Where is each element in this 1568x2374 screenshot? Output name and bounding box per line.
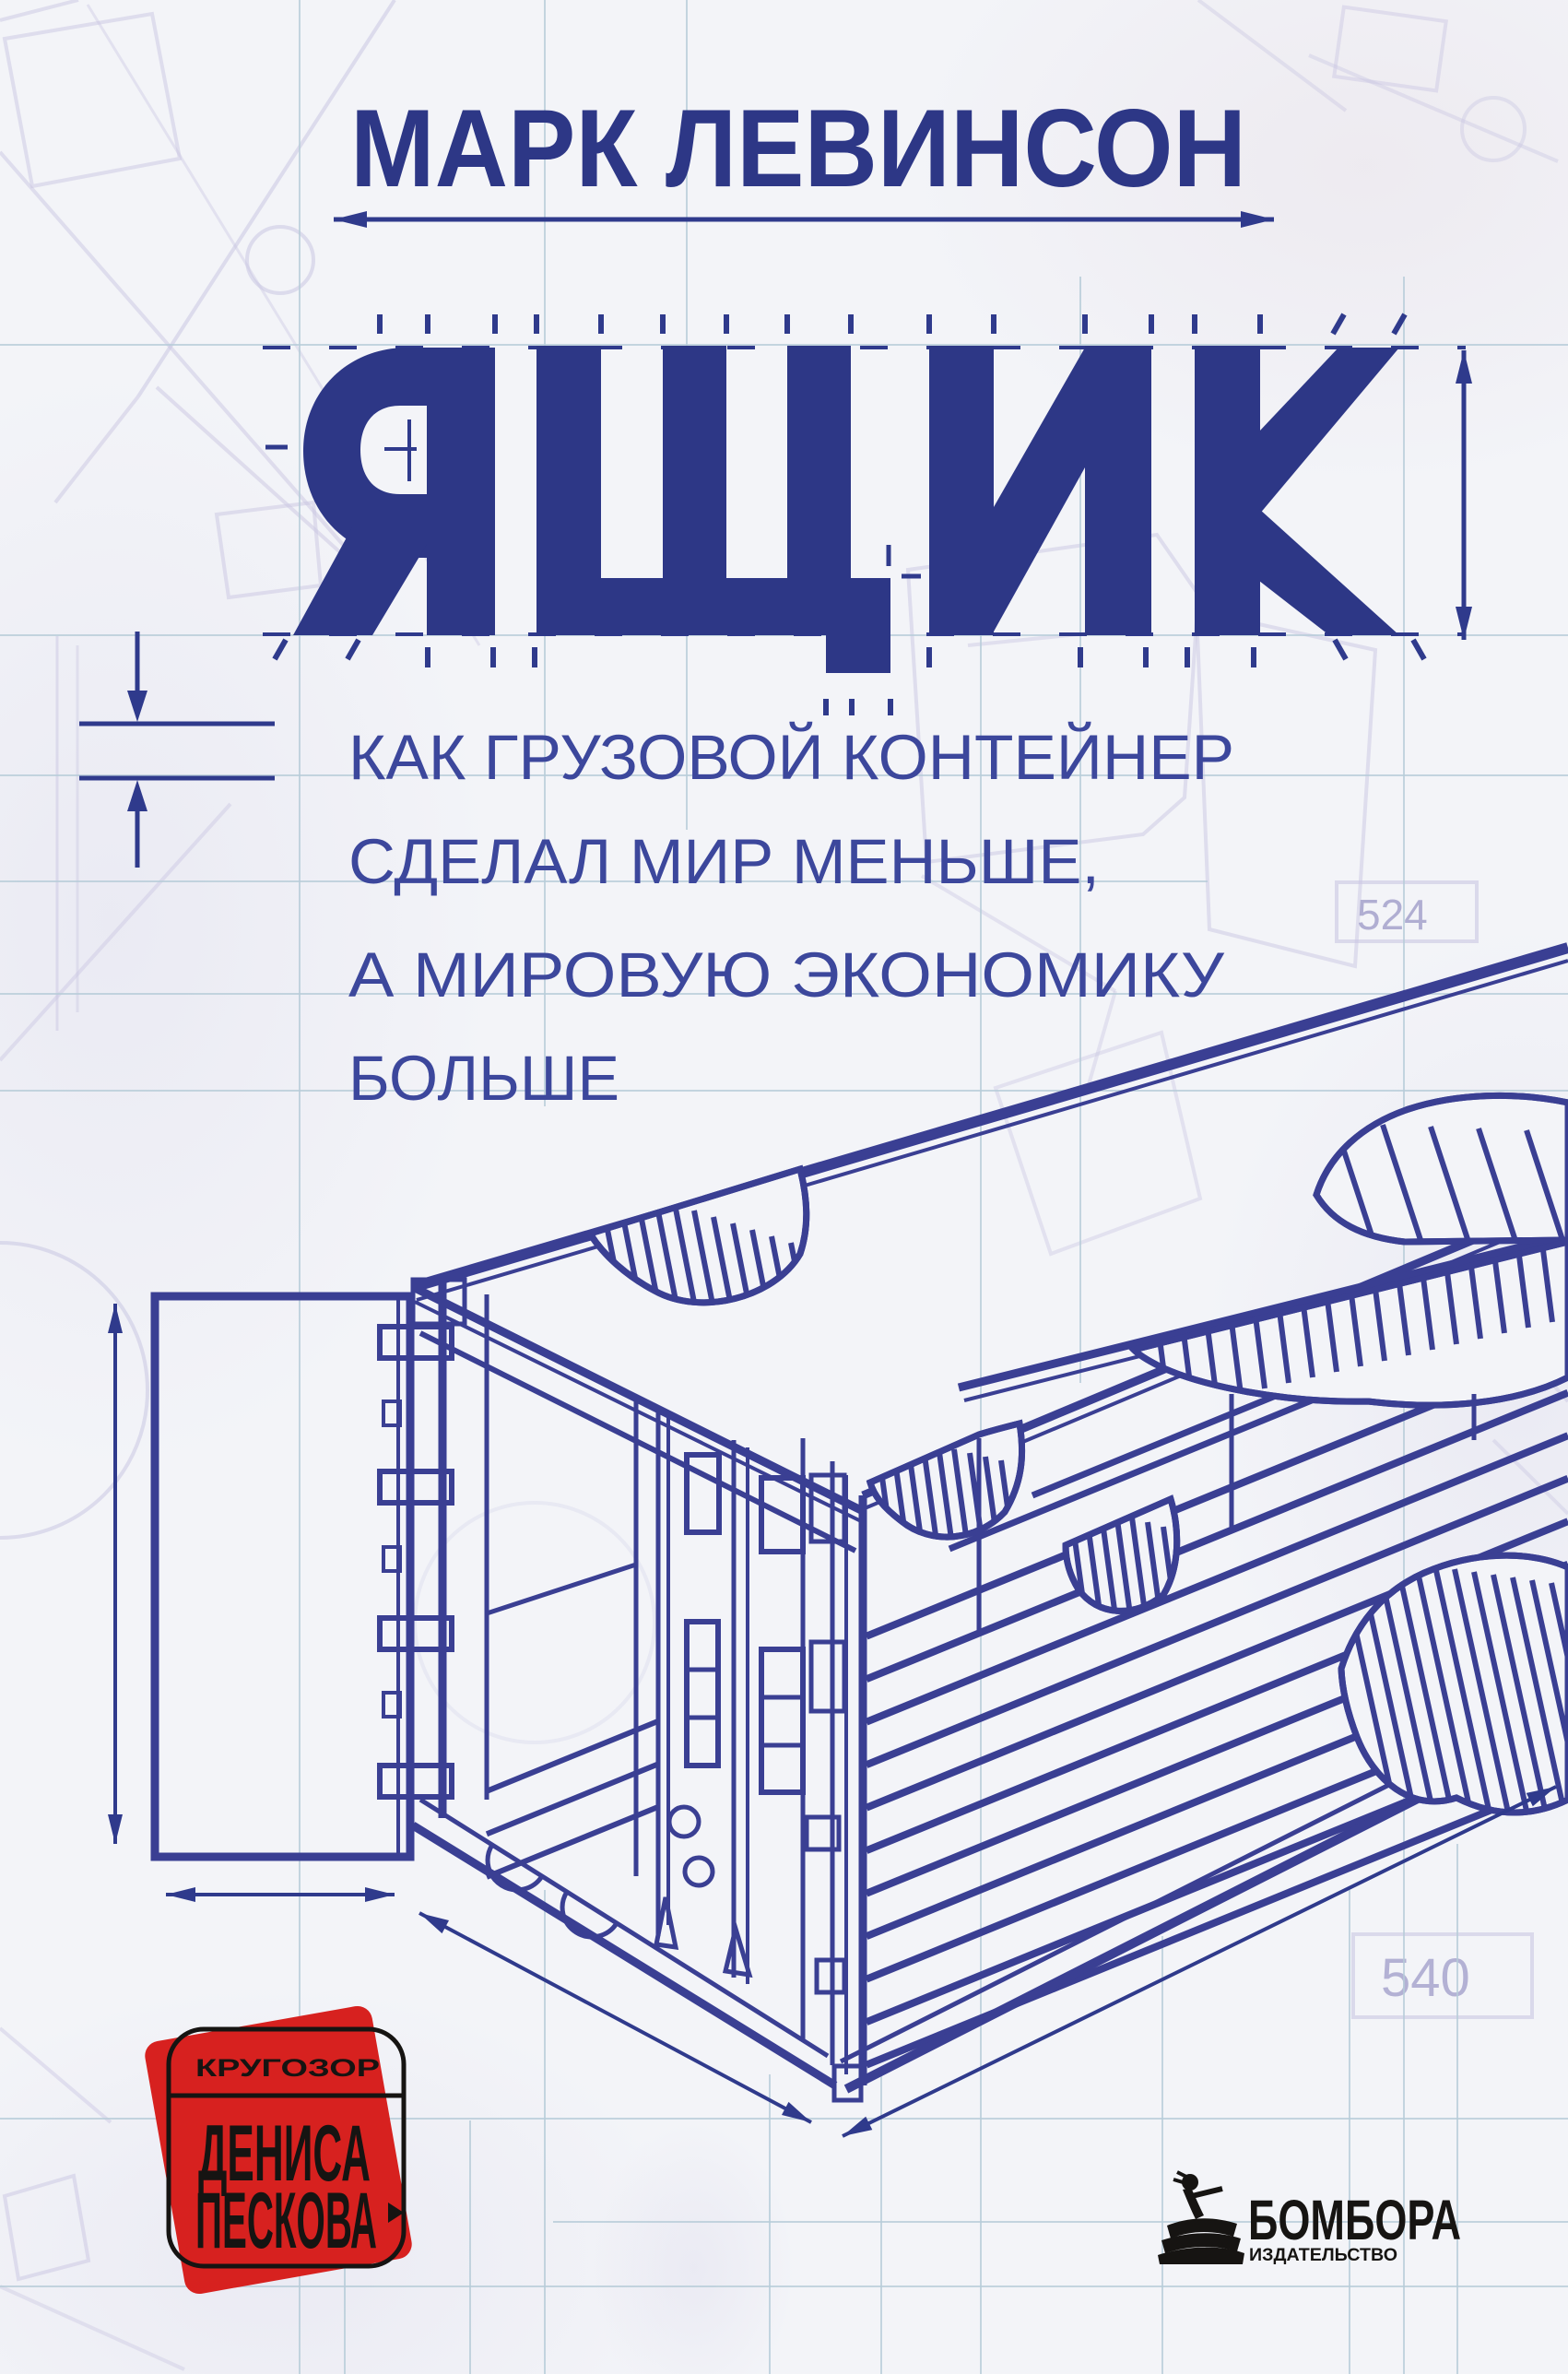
svg-text:А МИРОВУЮ ЭКОНОМИКУ: А МИРОВУЮ ЭКОНОМИКУ: [348, 939, 1225, 1010]
svg-text:ПЕСКОВА: ПЕСКОВА: [195, 2177, 377, 2265]
svg-text:524: 524: [1357, 891, 1428, 939]
svg-text:БОЛЬШЕ: БОЛЬШЕ: [348, 1043, 619, 1114]
svg-text:КАК ГРУЗОВОЙ КОНТЕЙНЕР: КАК ГРУЗОВОЙ КОНТЕЙНЕР: [348, 722, 1234, 793]
svg-text:СДЕЛАЛ МИР МЕНЬШЕ,: СДЕЛАЛ МИР МЕНЬШЕ,: [348, 826, 1100, 897]
svg-text:ИЗДАТЕЛЬСТВО: ИЗДАТЕЛЬСТВО: [1249, 2245, 1397, 2265]
svg-text:МАРК ЛЕВИНСОН: МАРК ЛЕВИНСОН: [350, 87, 1246, 210]
svg-text:КРУГОЗОР: КРУГОЗОР: [195, 2054, 380, 2082]
svg-text:БОМБОРА: БОМБОРА: [1248, 2189, 1461, 2251]
